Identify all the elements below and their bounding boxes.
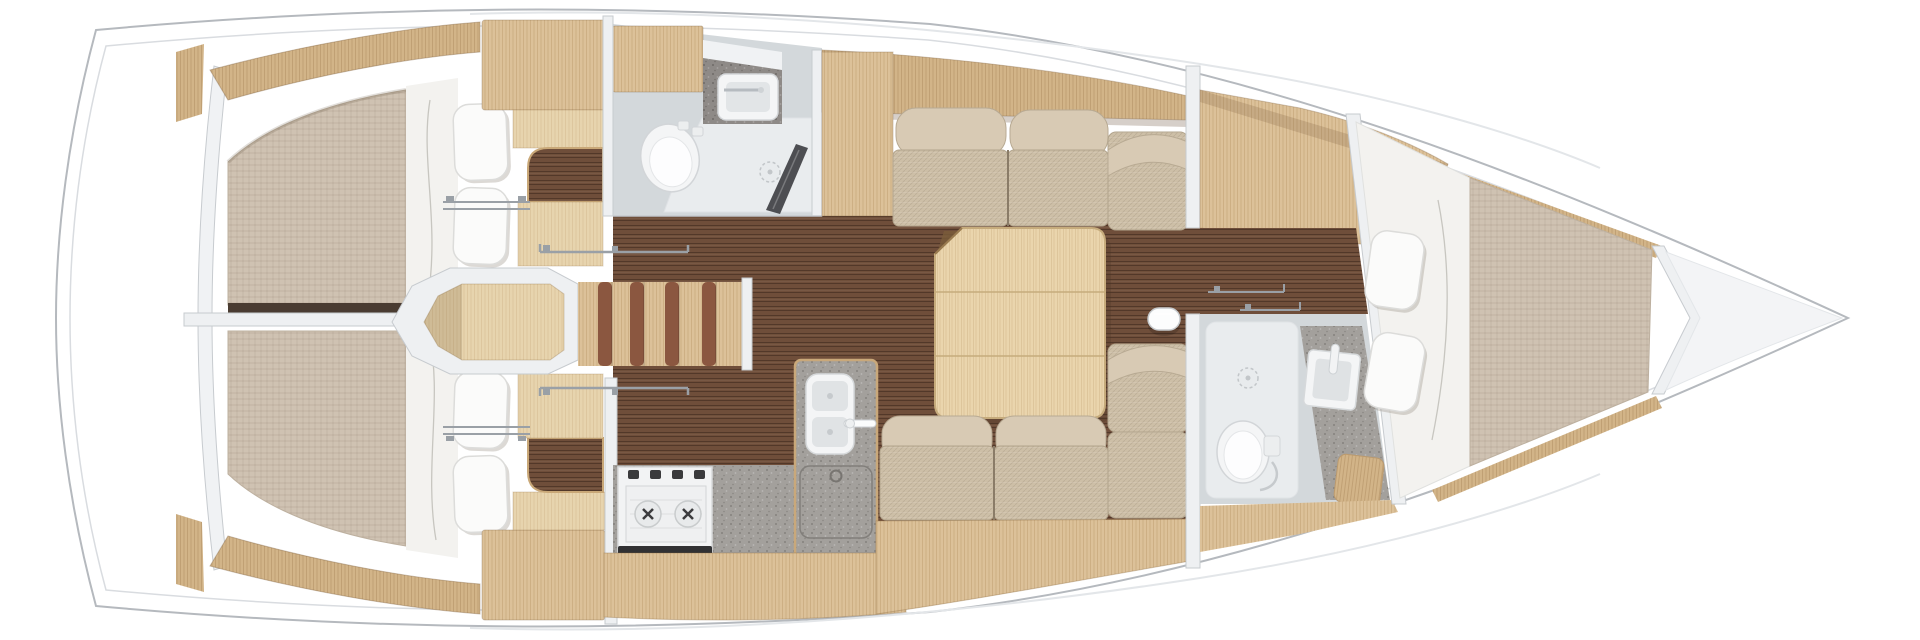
galley-faucet	[844, 419, 876, 428]
vanity-sink-basin	[726, 82, 770, 112]
burner	[635, 501, 661, 527]
pillow	[1363, 229, 1429, 315]
salon-table	[935, 228, 1111, 424]
aft-head	[603, 16, 822, 216]
seat-cushion	[893, 150, 1008, 226]
pillow	[453, 187, 512, 268]
shower-drain	[1238, 368, 1258, 388]
stove	[618, 467, 712, 558]
forward-cabin	[1356, 122, 1842, 502]
pillow	[453, 103, 512, 184]
main-bulkhead	[1186, 66, 1200, 568]
pillow	[453, 371, 512, 452]
stair-stripe	[702, 282, 716, 366]
corner-cushion	[1108, 432, 1188, 518]
stair-stripe	[665, 282, 679, 366]
aft-cabin-port	[176, 20, 605, 305]
transom-trim	[176, 514, 204, 592]
icebox-lid	[800, 466, 872, 538]
pillow	[453, 455, 512, 536]
yacht-floorplan-diagram	[0, 0, 1920, 640]
stove-knob	[694, 470, 705, 479]
head-cabinet	[613, 26, 703, 92]
seat-cushion	[880, 446, 994, 520]
berth-foot-cabinet	[518, 202, 603, 266]
wardrobe-cabinet	[482, 20, 605, 110]
stair-top-edge	[742, 278, 752, 370]
stair-stripe	[630, 282, 644, 366]
bulkhead-wall-lower	[1186, 314, 1200, 568]
cabinet-shelf	[513, 110, 605, 148]
seat-cushion	[994, 446, 1108, 520]
bulkhead-wall-upper	[1186, 66, 1200, 228]
transom-trim	[176, 44, 204, 122]
head-wall-left	[603, 16, 613, 216]
wood-seat	[1333, 453, 1385, 506]
companionway-stairs	[578, 278, 752, 370]
shower-drain	[760, 162, 780, 182]
table-top	[935, 228, 1105, 418]
mast-post	[1148, 308, 1180, 336]
entry-floor-walnut	[528, 148, 603, 202]
wardrobe-cabinet	[482, 530, 605, 620]
head-wall-right	[812, 50, 822, 216]
back-bolster	[896, 108, 1006, 156]
stair-stripe	[598, 282, 612, 366]
bulkhead-doorway-sole	[1186, 228, 1200, 314]
double-sink	[806, 374, 854, 454]
berth-foot-cabinet	[518, 374, 603, 438]
floorplan-canvas	[0, 0, 1920, 640]
dressing-walnut-sole	[1200, 228, 1368, 314]
cabinet-shelf	[513, 492, 605, 530]
stove-knob	[672, 470, 683, 479]
stove-knob	[650, 470, 661, 479]
seat-cushion	[1008, 150, 1108, 226]
galley-stowage-band	[604, 553, 906, 620]
entry-floor-walnut	[528, 438, 603, 492]
head-bottom-band	[1200, 500, 1398, 552]
burner	[675, 501, 701, 527]
stove-knob	[628, 470, 639, 479]
salon-side-cabinet	[822, 52, 893, 216]
